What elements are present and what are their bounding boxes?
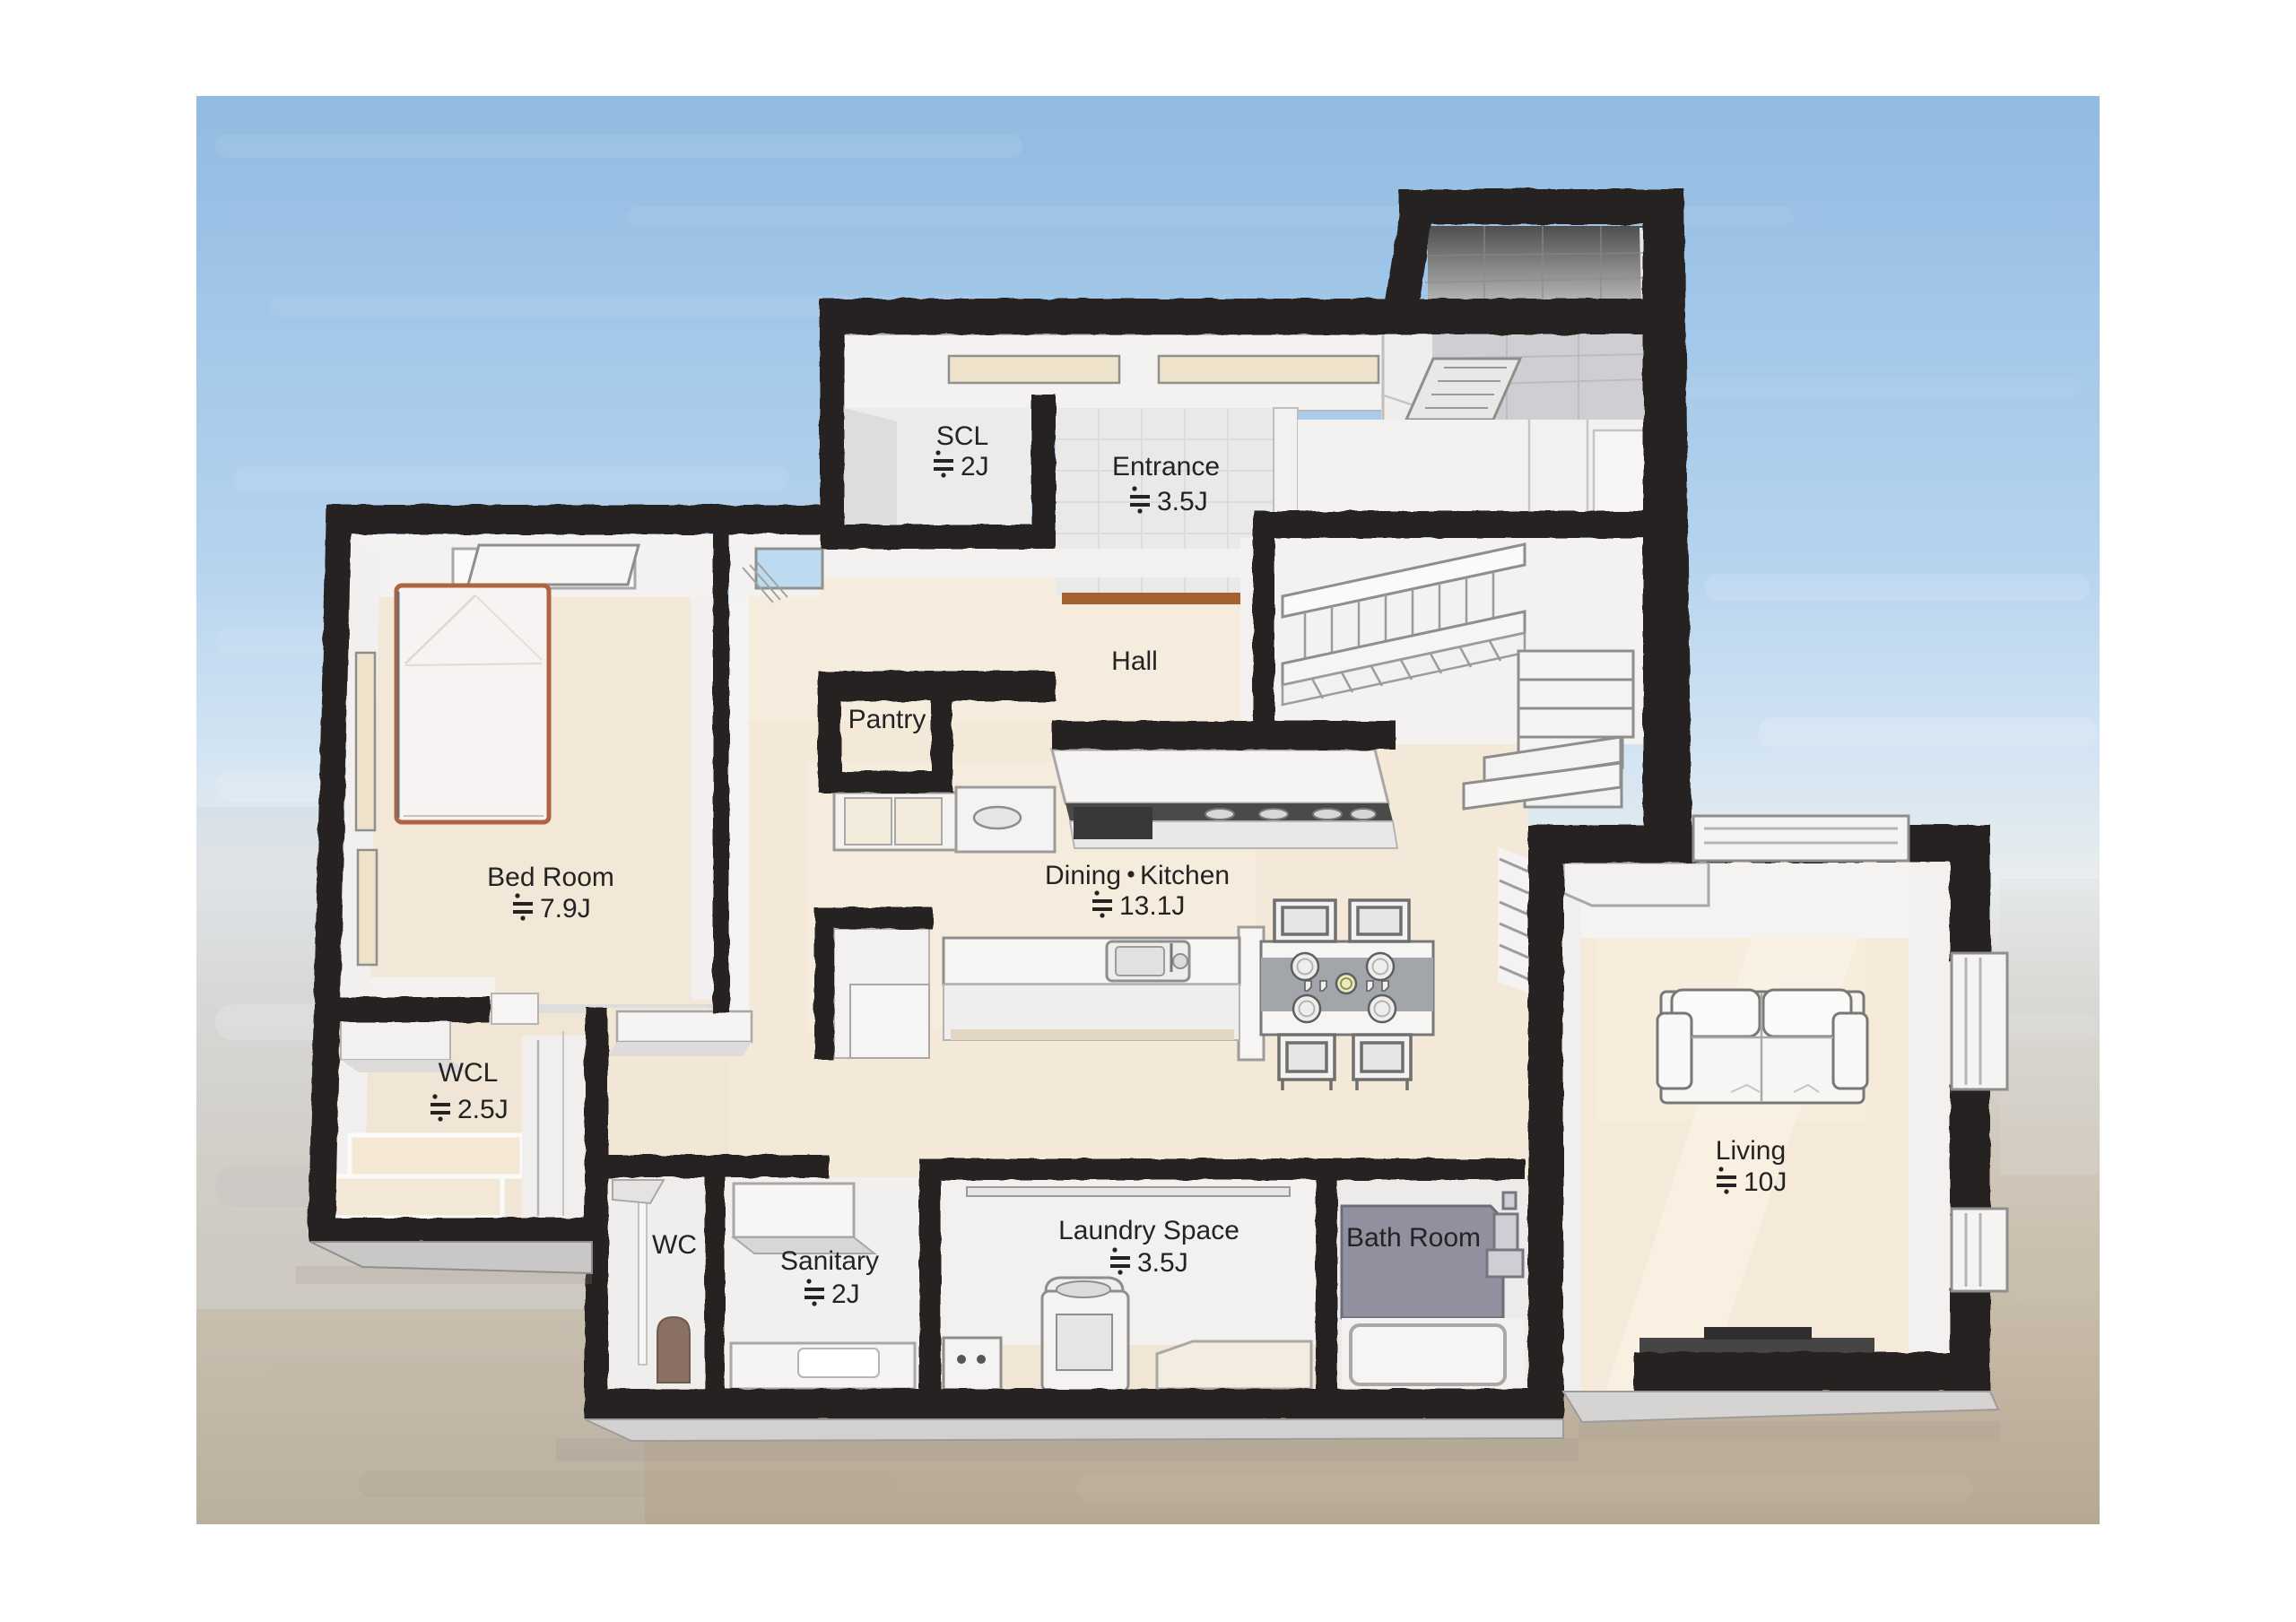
svg-text:7.9J: 7.9J	[540, 894, 591, 924]
svg-text:Hall: Hall	[1111, 646, 1158, 676]
svg-text:2.5J: 2.5J	[457, 1095, 509, 1124]
svg-text:13.1J: 13.1J	[1119, 891, 1185, 921]
svg-text:Kitchen: Kitchen	[1140, 861, 1230, 890]
svg-text:3.5J: 3.5J	[1137, 1248, 1188, 1278]
svg-text:10J: 10J	[1744, 1167, 1787, 1197]
svg-text:2J: 2J	[831, 1279, 860, 1309]
svg-text:Bed Room: Bed Room	[487, 863, 614, 892]
svg-text:3.5J: 3.5J	[1157, 487, 1208, 516]
svg-text:Entrance: Entrance	[1112, 452, 1220, 481]
svg-text:Bath Room: Bath Room	[1346, 1223, 1481, 1253]
svg-text:Dining: Dining	[1045, 861, 1121, 890]
svg-text:WC: WC	[652, 1230, 697, 1260]
svg-text:Living: Living	[1716, 1136, 1786, 1166]
svg-text:Sanitary: Sanitary	[780, 1246, 879, 1276]
svg-text:Laundry Space: Laundry Space	[1058, 1216, 1239, 1245]
svg-text:SCL: SCL	[936, 421, 988, 451]
svg-text:Pantry: Pantry	[848, 705, 926, 734]
svg-text:WCL: WCL	[439, 1058, 499, 1088]
svg-text:2J: 2J	[961, 452, 989, 481]
